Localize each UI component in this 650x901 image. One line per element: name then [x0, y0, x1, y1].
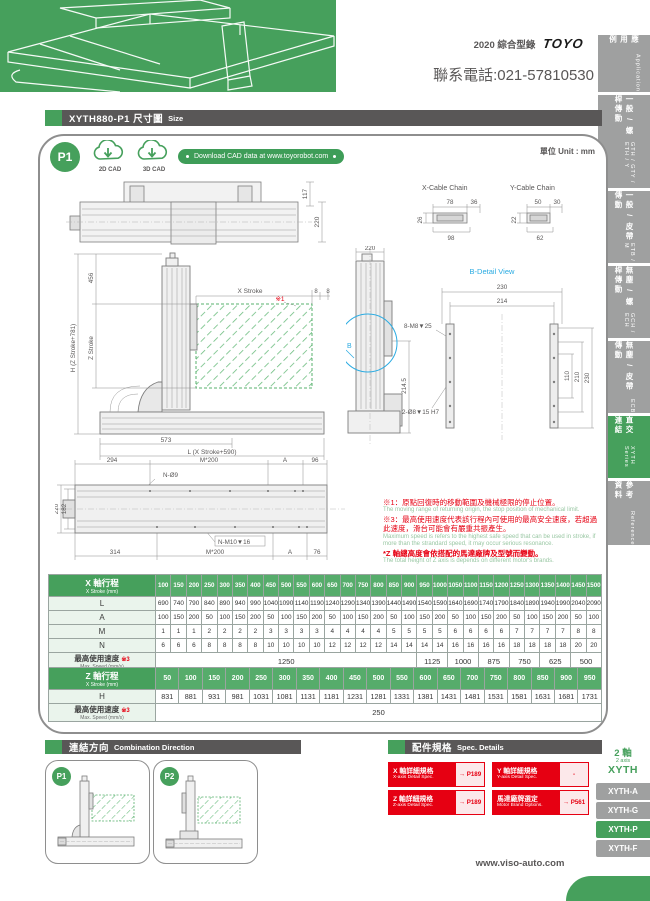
table-cell: 14 [386, 639, 401, 653]
table-cell: 7 [525, 625, 540, 639]
stroke-value: 1500 [586, 575, 602, 597]
table-cell: 8 [586, 625, 602, 639]
spec-label-cn: 馬達廠牌選定 [497, 793, 560, 803]
speed-label: 最高使用速度※3Max. Speed (mm/s) [49, 704, 156, 722]
catalog-year-label: 2020 綜合型錄 [474, 37, 536, 51]
table-cell: 20 [571, 639, 586, 653]
table-cell: 100 [525, 611, 540, 625]
dim-182: 182 [61, 503, 68, 514]
stroke-value: 850 [531, 668, 554, 690]
motor-brand-options-link[interactable]: 馬達廠牌選定Motor Brand Options. → P561 [492, 790, 589, 815]
table-cell: 6 [448, 625, 463, 639]
table-cell: 790 [186, 597, 201, 611]
stroke-header-cn: X 軸行程 [49, 577, 155, 589]
stroke-header-row: X 軸行程X Stroke (mm)1001502002503003504004… [49, 575, 602, 597]
cad-3d-label: 3D CAD [132, 167, 176, 173]
table-cell: 100 [217, 611, 232, 625]
stroke-value: 1100 [463, 575, 478, 597]
table-cell: 1 [171, 625, 186, 639]
top-view-drawing: 117 220 [66, 178, 336, 250]
table-cell: 100 [156, 611, 171, 625]
table-cell: 8 [232, 639, 247, 653]
table-cell: 10 [309, 639, 324, 653]
table-cell: 18 [555, 639, 570, 653]
tab-label-en: ETB / M [613, 243, 635, 263]
table-cell: 200 [494, 611, 509, 625]
stroke-value: 450 [343, 668, 366, 690]
spec-label-cn: Y 軸詳細規格 [497, 765, 560, 775]
table-cell: 50 [448, 611, 463, 625]
stroke-value: 1050 [448, 575, 463, 597]
table-cell: 1740 [478, 597, 493, 611]
x-axis-spec-link[interactable]: X 軸詳細規格X-axis Detail Spec. → P189 [388, 762, 485, 787]
cloud-download-icon [135, 140, 173, 164]
z-stroke-table-host: Z 軸行程X Stroke (mm)5010015020025030035040… [48, 667, 602, 722]
table-cell: 6 [156, 639, 171, 653]
download-cad-button[interactable]: Download CAD data at www.toyorobot.com [178, 149, 344, 164]
dim-98: 98 [448, 235, 455, 242]
tab-label-en: ECB [613, 399, 635, 413]
dim-22: 22 [511, 216, 518, 223]
stroke-value: 1350 [540, 575, 555, 597]
note-3-cn: ※3：最高使用速度代表該行程內可使用的最高安全速度，若超過此速度，滑台可能會有嚴… [383, 515, 602, 534]
table-cell: 1440 [386, 597, 401, 611]
table-cell: 1540 [417, 597, 432, 611]
table-cell: 18 [509, 639, 524, 653]
combination-title-cn: 連結方向 [69, 740, 109, 754]
table-cell: 1131 [296, 690, 319, 704]
table-cell: 1040 [263, 597, 278, 611]
stroke-value: 250 [249, 668, 272, 690]
stroke-value: 700 [461, 668, 484, 690]
series-block: 2 軸 2 axis XYTH [596, 749, 650, 776]
stroke-value: 750 [355, 575, 370, 597]
table-cell: 940 [232, 597, 247, 611]
data-row: A100150200501001502005010015020050100150… [49, 611, 602, 625]
table-cell: 7 [540, 625, 555, 639]
table-cell: 6 [186, 639, 201, 653]
page-title-en: Size [168, 114, 183, 123]
dim-36: 36 [471, 199, 478, 206]
table-cell: 1340 [355, 597, 370, 611]
dim-220-base: 220 [55, 503, 60, 514]
table-cell: 1181 [320, 690, 343, 704]
cloud-download-icon [91, 140, 129, 164]
table-cell: 1331 [390, 690, 413, 704]
dim-50: 50 [535, 199, 542, 206]
notes-block: ※1：原點回復時的移動範圍及機械極限的停止位置。 The moving rang… [383, 498, 602, 566]
table-cell: 8 [202, 639, 217, 653]
note-1-en: The moving range of returning origin, th… [383, 507, 602, 515]
stroke-value: 150 [202, 668, 225, 690]
spec-title-en: Spec. Details [457, 743, 504, 752]
download-cad-label: Download CAD data at www.toyorobot.com [194, 153, 328, 160]
table-cell: 16 [494, 639, 509, 653]
table-cell: 8 [217, 639, 232, 653]
stroke-value: 950 [578, 668, 602, 690]
dim-230-right: 230 [584, 372, 591, 383]
speed-value: 250 [156, 704, 602, 722]
note-3-en: Maximum speed is refers to the highest s… [383, 534, 602, 549]
table-cell: 16 [463, 639, 478, 653]
table-cell: 5 [386, 625, 401, 639]
stroke-value: 150 [171, 575, 186, 597]
size-section-bar: XYTH880-P1 尺寸圖 Size [45, 110, 602, 126]
spec-title-cn: 配件規格 [412, 740, 452, 754]
speed-note-mark: ※3 [121, 657, 129, 663]
stroke-value: 50 [156, 668, 179, 690]
stroke-value: 900 [402, 575, 417, 597]
speed-label-cn: 最高使用速度 [74, 705, 119, 714]
stroke-value: 750 [484, 668, 507, 690]
table-cell: 12 [355, 639, 370, 653]
table-cell: 8 [248, 639, 263, 653]
table-cell: 150 [171, 611, 186, 625]
table-cell: 981 [226, 690, 249, 704]
spec-label-en: Z-axis Detail Spec. [393, 803, 456, 808]
table-cell: 50 [509, 611, 524, 625]
table-cell: 831 [156, 690, 179, 704]
tab-xyth-f[interactable]: XYTH-F [596, 840, 650, 857]
table-cell: 3 [294, 625, 309, 639]
table-cell: 1240 [325, 597, 340, 611]
table-cell: 50 [386, 611, 401, 625]
table-cell: 200 [186, 611, 201, 625]
dim-230-top: 230 [497, 284, 508, 291]
table-cell: 100 [402, 611, 417, 625]
stroke-value: 100 [156, 575, 171, 597]
stroke-value: 1250 [509, 575, 524, 597]
stroke-table: Z 軸行程X Stroke (mm)5010015020025030035040… [48, 667, 602, 722]
table-cell: 5 [417, 625, 432, 639]
stroke-value: 200 [226, 668, 249, 690]
speed-note-mark: ※3 [121, 708, 129, 714]
table-cell: 1481 [461, 690, 484, 704]
table-cell: 5 [402, 625, 417, 639]
stroke-value: 500 [367, 668, 390, 690]
stroke-value: 800 [371, 575, 386, 597]
unit-label: 單位 Unit : mm [500, 146, 595, 157]
stroke-value: 1200 [494, 575, 509, 597]
dim-30: 30 [554, 199, 561, 206]
tab-label-en: XYTH Series [613, 446, 635, 478]
stroke-value: 900 [554, 668, 577, 690]
table-cell: 14 [432, 639, 447, 653]
table-cell: 18 [525, 639, 540, 653]
combination-card-p2: P2 [153, 760, 258, 864]
spec-section-bar: 配件規格 Spec. Details [388, 740, 602, 754]
dim-220: 220 [314, 216, 321, 227]
gantry-robot-wireframe [0, 0, 336, 92]
toyo-logo: TOYO [542, 36, 585, 51]
p2-card-badge: P2 [160, 767, 179, 786]
table-cell: 1 [186, 625, 201, 639]
table-cell: 2 [202, 625, 217, 639]
y-axis-spec-link[interactable]: Y 軸詳細規格Y-axis Detail Spec. - [492, 762, 589, 787]
table-cell: 4 [371, 625, 386, 639]
table-cell: 1790 [494, 597, 509, 611]
table-cell: 150 [540, 611, 555, 625]
tab-label-cn: 應用例 [608, 35, 641, 52]
stroke-value: 450 [263, 575, 278, 597]
catalog-page: 2020 綜合型錄 TOYO 聯系電話:021-57810530 應用例Appl… [0, 0, 650, 901]
table-cell: 1681 [554, 690, 577, 704]
table-cell: 10 [279, 639, 294, 653]
table-cell: 1581 [508, 690, 531, 704]
stroke-value: 650 [325, 575, 340, 597]
spec-page-ref: - [560, 763, 588, 786]
stroke-header-cn: Z 軸行程 [49, 670, 155, 682]
table-cell: 1490 [402, 597, 417, 611]
callout-n-m10: N-M10▼16 [218, 539, 251, 546]
stroke-value: 100 [179, 668, 202, 690]
table-cell: 1140 [294, 597, 309, 611]
table-cell: 2 [248, 625, 263, 639]
speed-label-sub: Max. Speed (mm/s) [49, 715, 155, 721]
row-label: L [49, 597, 156, 611]
table-cell: 1081 [273, 690, 296, 704]
stroke-header-row: Z 軸行程X Stroke (mm)5010015020025030035040… [49, 668, 602, 690]
dim-m200-top: M*200 [200, 457, 219, 464]
table-cell: 150 [294, 611, 309, 625]
tab-label-cn: 一般 / 皮帶傳動 [613, 191, 635, 241]
table-cell: 1990 [555, 597, 570, 611]
table-cell: 50 [325, 611, 340, 625]
stroke-header-label: Z 軸行程X Stroke (mm) [49, 668, 156, 690]
table-cell: 10 [294, 639, 309, 653]
green-accent-square [388, 740, 405, 754]
contact-phone: 聯系電話:021-57810530 [433, 64, 594, 85]
callout-n-o9: N-Ø9 [163, 472, 179, 479]
spec-label-en: Y-axis Detail Spec. [497, 775, 560, 780]
dim-8b: 8 [326, 289, 330, 295]
tab-label-cn: 無塵 / 螺桿傳動 [613, 266, 635, 311]
table-cell: 5 [432, 625, 447, 639]
stroke-value: 600 [309, 575, 324, 597]
table-cell: 1381 [414, 690, 437, 704]
dim-96: 96 [311, 457, 319, 464]
stroke-value: 700 [340, 575, 355, 597]
table-cell: 2090 [586, 597, 602, 611]
stroke-header-sub: X Stroke (mm) [49, 589, 155, 595]
dot-icon [333, 155, 336, 158]
stroke-header-sub: X Stroke (mm) [49, 682, 155, 688]
row-label: N [49, 639, 156, 653]
dim-214: 214 [497, 298, 508, 305]
stroke-value: 1300 [525, 575, 540, 597]
series-name: XYTH [596, 765, 650, 776]
table-cell: 50 [571, 611, 586, 625]
combination-title-en: Combination Direction [114, 743, 194, 752]
table-cell: 1631 [531, 690, 554, 704]
table-cell: 1090 [279, 597, 294, 611]
website-url: www.viso-auto.com [440, 858, 600, 869]
table-cell: 1731 [578, 690, 602, 704]
row-label: A [49, 611, 156, 625]
table-cell: 8 [571, 625, 586, 639]
stroke-value: 950 [417, 575, 432, 597]
stroke-value: 600 [414, 668, 437, 690]
note-z-cn: *Z 軸總高度會依搭配的馬達廠牌及型號而變動。 [383, 549, 602, 558]
spec-page-ref: → P189 [456, 791, 484, 814]
dim-573: 573 [161, 437, 172, 444]
spec-label-cn: Z 軸詳細規格 [393, 793, 456, 803]
dim-a-bottom: A [288, 549, 293, 556]
table-cell: 2 [217, 625, 232, 639]
table-cell: 200 [248, 611, 263, 625]
stroke-value: 350 [296, 668, 319, 690]
base-view-drawing: 294 M*200 A 96 N-Ø9 220 182 314 M*200 A … [55, 450, 355, 568]
table-cell: 1940 [540, 597, 555, 611]
table-cell: 3 [309, 625, 324, 639]
dim-210: 210 [574, 371, 581, 382]
stroke-value: 550 [294, 575, 309, 597]
table-cell: 890 [217, 597, 232, 611]
table-cell: 14 [417, 639, 432, 653]
stroke-value: 250 [202, 575, 217, 597]
table-cell: 4 [340, 625, 355, 639]
stroke-value: 850 [386, 575, 401, 597]
table-cell: 4 [325, 625, 340, 639]
dim-x-stroke: X Stroke [238, 288, 263, 295]
dim-314: 314 [110, 549, 121, 556]
table-cell: 1840 [509, 597, 524, 611]
stroke-value: 350 [232, 575, 247, 597]
table-cell: 6 [478, 625, 493, 639]
tab-label-en: Application [608, 54, 641, 92]
cad-2d-label: 2D CAD [88, 167, 132, 173]
table-cell: 1690 [463, 597, 478, 611]
row-label: H [49, 690, 156, 704]
tab-label-cn: 無塵 / 皮帶傳動 [613, 341, 635, 397]
dim-m200-bottom: M*200 [206, 549, 225, 556]
dim-456: 456 [88, 272, 95, 283]
b-detail-marker: B [347, 343, 352, 350]
table-cell: 100 [586, 611, 602, 625]
stroke-value: 1400 [555, 575, 570, 597]
p1-card-badge: P1 [52, 767, 71, 786]
z-axis-spec-link[interactable]: Z 軸詳細規格Z-axis Detail Spec. → P189 [388, 790, 485, 815]
spec-label-en: Motor Brand Options. [497, 803, 560, 808]
b-detail-title: B-Detail View [470, 267, 515, 276]
table-cell: 200 [555, 611, 570, 625]
dim-h-total: H (Z Stroke+781) [70, 324, 77, 372]
table-cell: 740 [171, 597, 186, 611]
table-cell: 12 [371, 639, 386, 653]
stroke-value: 550 [390, 668, 413, 690]
catalog-title: 2020 綜合型錄 TOYO [474, 36, 584, 51]
data-row: M11122223333444455556666777788 [49, 625, 602, 639]
stroke-value: 800 [508, 668, 531, 690]
stroke-value: 1150 [478, 575, 493, 597]
table-cell: 1390 [371, 597, 386, 611]
table-cell: 100 [463, 611, 478, 625]
table-cell: 7 [555, 625, 570, 639]
data-row: L690740790840890940990104010901140119012… [49, 597, 602, 611]
green-accent-square [45, 110, 62, 126]
spec-label-en: X-axis Detail Spec. [393, 775, 456, 780]
tab-label-cn: 一般 / 螺桿傳動 [613, 95, 635, 140]
x-cable-chain-title: X-Cable Chain [422, 185, 468, 192]
dim-76: 76 [313, 549, 321, 556]
tab-label-en: GCH / ECH [613, 313, 635, 338]
table-cell: 18 [540, 639, 555, 653]
tab-xyth-a[interactable]: XYTH-A [596, 783, 650, 800]
sidebar-tab-application[interactable]: 應用例Application [598, 35, 650, 92]
table-cell: 150 [232, 611, 247, 625]
download-2d-cad[interactable]: 2D CAD [88, 140, 132, 173]
table-cell: 10 [263, 639, 278, 653]
table-cell: 6 [463, 625, 478, 639]
stroke-value: 200 [186, 575, 201, 597]
speed-row: 最高使用速度※3Max. Speed (mm/s)250 [49, 704, 602, 722]
table-cell: 100 [340, 611, 355, 625]
page-title: XYTH880-P1 尺寸圖 [69, 111, 163, 125]
table-cell: 12 [325, 639, 340, 653]
green-accent-square [45, 740, 62, 754]
table-cell: 1640 [448, 597, 463, 611]
tab-label-cn: 直交連結 [613, 416, 635, 444]
x-stroke-table-host: X 軸行程X Stroke (mm)1001502002503003504004… [48, 574, 602, 671]
table-cell: 690 [156, 597, 171, 611]
page-corner-decoration [566, 876, 650, 901]
tab-label-cn: 參考資料 [613, 481, 635, 509]
table-cell: 200 [371, 611, 386, 625]
table-cell: 6 [171, 639, 186, 653]
table-cell: 150 [478, 611, 493, 625]
table-cell: 14 [402, 639, 417, 653]
y-cable-chain-title: Y-Cable Chain [510, 185, 555, 192]
spec-label-cn: X 軸詳細規格 [393, 765, 456, 775]
data-row: H831881931981103110811131118112311281133… [49, 690, 602, 704]
combination-card-p1: P1 [45, 760, 150, 864]
note-mark-1: ※1 [275, 296, 284, 303]
speed-label-cn: 最高使用速度 [74, 654, 119, 663]
product-photo-banner [0, 0, 336, 92]
tab-xyth-g[interactable]: XYTH-G [596, 802, 650, 819]
stroke-value: 300 [273, 668, 296, 690]
stroke-value: 300 [217, 575, 232, 597]
table-cell: 1281 [367, 690, 390, 704]
table-cell: 3 [263, 625, 278, 639]
dim-220-side: 220 [365, 246, 376, 252]
tab-label-en: GTH / GTY / ETH / Y [613, 142, 635, 188]
table-cell: 1531 [484, 690, 507, 704]
dim-62: 62 [537, 235, 544, 242]
table-cell: 16 [478, 639, 493, 653]
dim-294: 294 [107, 457, 118, 464]
table-cell: 7 [509, 625, 524, 639]
table-cell: 881 [179, 690, 202, 704]
table-cell: 100 [279, 611, 294, 625]
download-3d-cad[interactable]: 3D CAD [132, 140, 176, 173]
table-cell: 1190 [309, 597, 324, 611]
stroke-value: 1000 [432, 575, 447, 597]
table-cell: 1031 [249, 690, 272, 704]
table-cell: 50 [263, 611, 278, 625]
p1-badge: P1 [50, 142, 80, 172]
tab-xyth-p[interactable]: XYTH-P [596, 821, 650, 838]
dim-78: 78 [447, 199, 454, 206]
stroke-value: 400 [320, 668, 343, 690]
table-cell: 150 [417, 611, 432, 625]
spec-page-ref: → P561 [560, 791, 588, 814]
dim-26: 26 [417, 216, 424, 223]
dim-a-top: A [283, 457, 288, 464]
table-cell: 3 [279, 625, 294, 639]
table-cell: 1590 [432, 597, 447, 611]
table-cell: 2040 [571, 597, 586, 611]
